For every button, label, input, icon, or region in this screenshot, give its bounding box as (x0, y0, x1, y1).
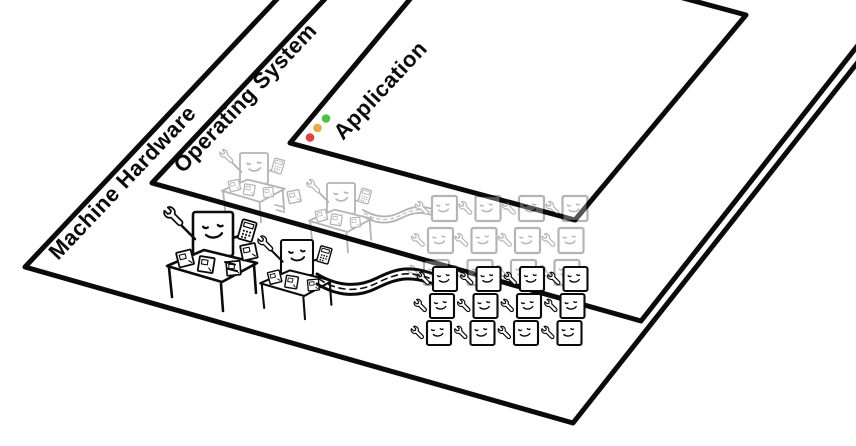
close-button-icon (306, 133, 315, 142)
diagram-canvas: Machine Hardware Operating System Applic… (0, 0, 856, 446)
maximize-button-icon (322, 114, 331, 123)
layered-architecture-diagram: Machine Hardware Operating System Applic… (0, 0, 856, 446)
minimize-button-icon (313, 124, 322, 133)
